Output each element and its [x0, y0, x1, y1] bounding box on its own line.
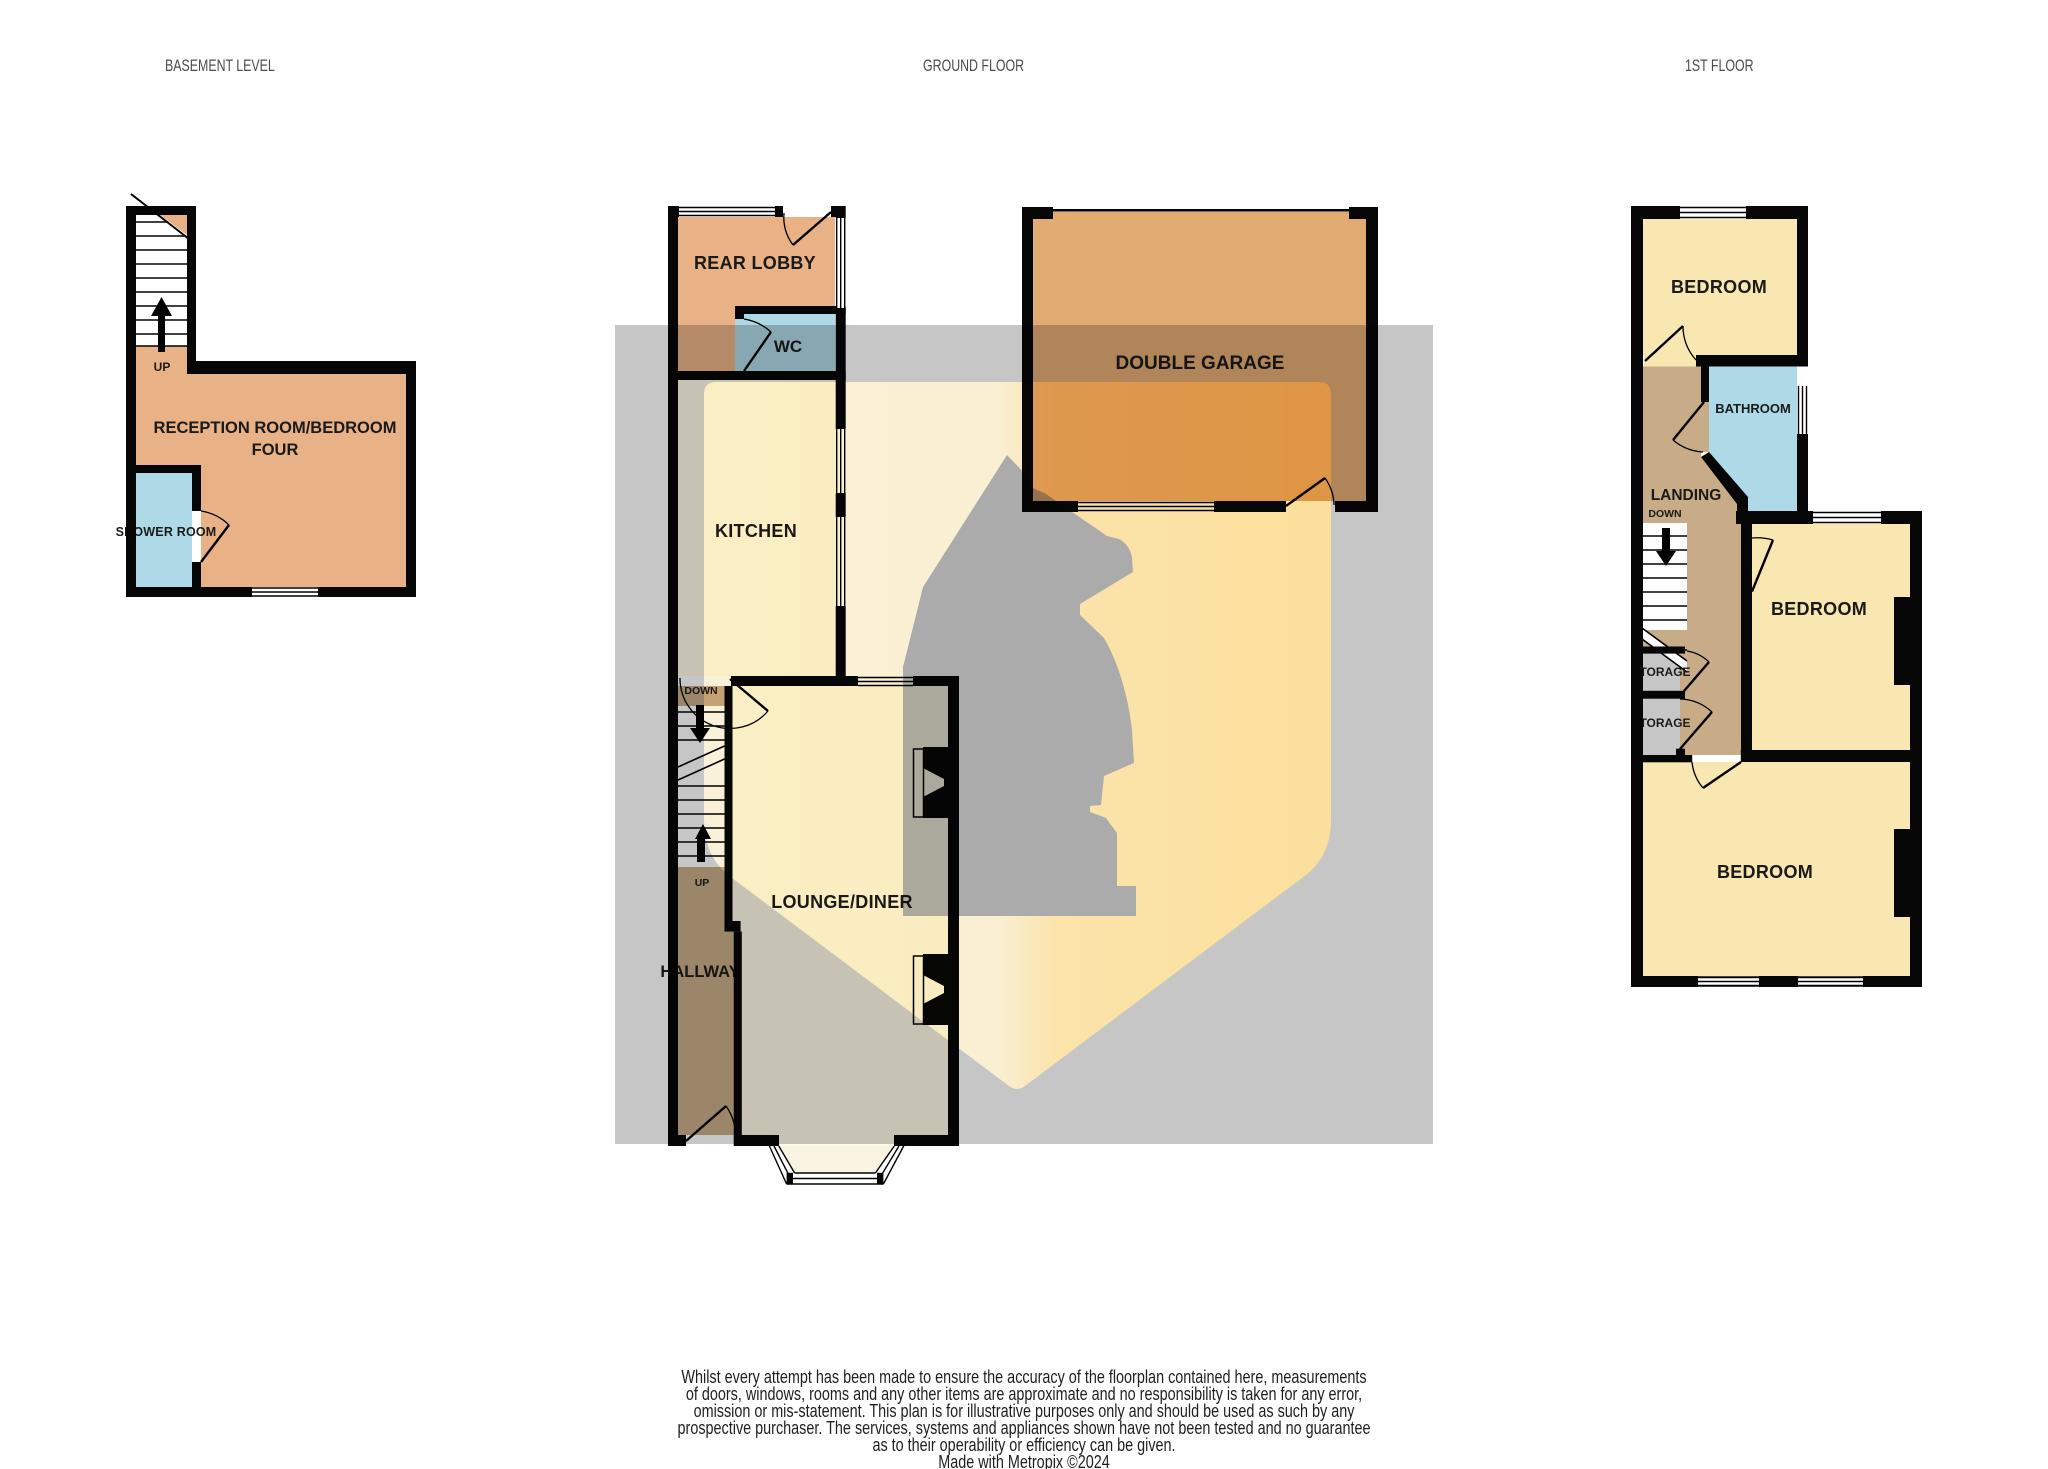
- svg-text:DOWN: DOWN: [1648, 508, 1681, 520]
- svg-text:BEDROOM: BEDROOM: [1717, 862, 1813, 882]
- svg-text:BEDROOM: BEDROOM: [1671, 277, 1767, 297]
- svg-text:BEDROOM: BEDROOM: [1771, 599, 1867, 619]
- svg-text:RECEPTION ROOM/BEDROOM: RECEPTION ROOM/BEDROOM: [154, 419, 397, 437]
- svg-text:BATHROOM: BATHROOM: [1715, 401, 1791, 416]
- svg-text:LANDING: LANDING: [1651, 487, 1722, 504]
- svg-text:UP: UP: [154, 360, 171, 374]
- svg-text:FOUR: FOUR: [252, 441, 299, 459]
- svg-text:REAR LOBBY: REAR LOBBY: [694, 253, 816, 273]
